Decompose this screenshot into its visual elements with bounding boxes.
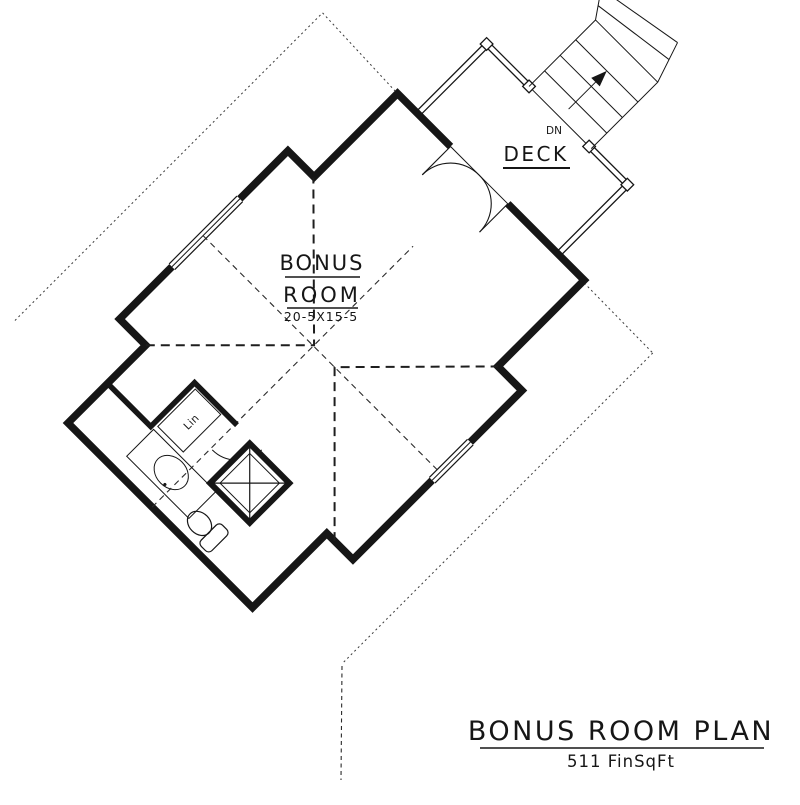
deck-post <box>621 178 634 191</box>
room-dimensions-label: 20-5X15-5 <box>284 309 358 324</box>
stair-end-edge <box>601 0 677 54</box>
room-name-line1: BONUS <box>280 251 365 275</box>
plan-title: BONUS ROOM PLAN <box>468 716 774 747</box>
stair-stringer-top <box>516 0 614 86</box>
bonus-room-label: BONUS ROOM 20-5X15-5 <box>280 251 365 324</box>
stairs <box>516 0 687 149</box>
deck-railing-nw <box>418 43 489 114</box>
deck-railing-ne-upper <box>487 44 531 88</box>
title-block: BONUS ROOM PLAN 511 FinSqFt <box>468 716 774 771</box>
deck-railing-se <box>556 184 628 256</box>
stair-direction-arrow-icon <box>564 67 611 114</box>
plan-area-label: 511 FinSqFt <box>567 752 675 771</box>
floor-plan-sheet: Lin BONUS <box>0 0 800 805</box>
deck-label-group: DECK <box>503 142 570 168</box>
roof-hip-line-bottom <box>341 666 342 780</box>
deck-railing-ne-lower <box>587 144 629 186</box>
stair-down-label: DN <box>546 125 562 137</box>
floor-plan-drawing: Lin BONUS <box>0 0 800 805</box>
deck-label: DECK <box>503 142 568 166</box>
room-name-line2: ROOM <box>283 283 361 307</box>
deck-edge-at-stairs <box>529 86 589 146</box>
deck-post <box>480 38 493 51</box>
roof-outline-east <box>583 283 653 353</box>
roof-outline-ne <box>320 13 399 92</box>
